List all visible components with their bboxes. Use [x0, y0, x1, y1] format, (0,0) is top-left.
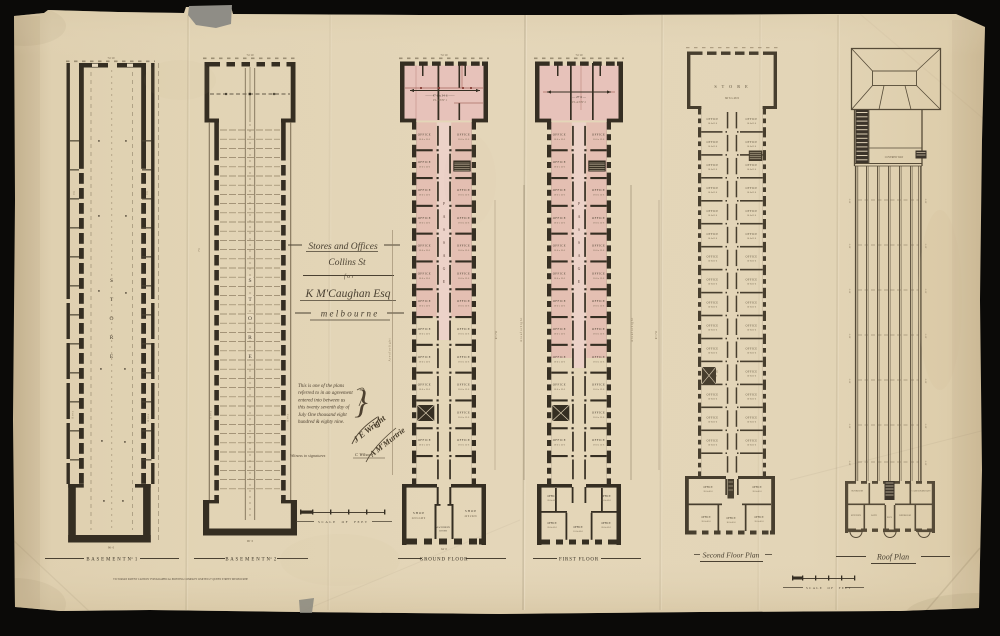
svg-text:OFFICE: OFFICE [706, 164, 718, 167]
svg-text:16·0x12·6: 16·0x12·6 [747, 398, 757, 400]
svg-text:OFFICE: OFFICE [418, 188, 431, 192]
svg-text:OFFICE: OFFICE [706, 325, 718, 328]
svg-text:BEDROOM: BEDROOM [899, 515, 911, 517]
svg-text:BATH: BATH [871, 514, 877, 517]
svg-text:16·0 x 13·6: 16·0 x 13·6 [419, 138, 431, 141]
svg-text:OFFICE: OFFICE [706, 348, 718, 351]
svg-text:R: R [110, 335, 114, 341]
svg-text:GROUND FLOOR: GROUND FLOOR [420, 558, 469, 563]
svg-text:16·0 x 13·6: 16·0 x 13·6 [554, 194, 566, 197]
svg-text:OFFICE: OFFICE [701, 516, 711, 519]
svg-text:16·0x12·6: 16·0x12·6 [747, 444, 757, 446]
svg-text:16·0x12·6: 16·0x12·6 [708, 330, 718, 332]
svg-text:16·0 x 13·6: 16·0 x 13·6 [593, 305, 605, 308]
svg-text:16·0x12·6: 16·0x12·6 [747, 307, 757, 309]
svg-text:OFFICE: OFFICE [703, 486, 713, 489]
svg-text:OFFICE: OFFICE [706, 416, 718, 419]
svg-text:20·0x16·6: 20·0x16·6 [601, 500, 611, 502]
svg-text:16·0 x 13·6: 16·0 x 13·6 [554, 277, 566, 280]
svg-text:OFFICE: OFFICE [706, 439, 718, 442]
svg-text:OFFICE: OFFICE [706, 256, 718, 259]
svg-text:R: R [248, 335, 252, 341]
svg-text:20·0x16·0: 20·0x16·0 [701, 521, 711, 523]
svg-text:This is one of the plans: This is one of the plans [298, 384, 344, 389]
svg-text:16·0 x 13·6: 16·0 x 13·6 [458, 360, 470, 363]
svg-text:S: S [110, 278, 113, 284]
svg-text:OFFICE: OFFICE [592, 327, 605, 331]
svg-text:16·0 x 13·6: 16·0 x 13·6 [419, 221, 431, 224]
svg-text:— 27·6 —: — 27·6 — [571, 95, 587, 99]
svg-text:16·0 x 13·6: 16·0 x 13·6 [554, 166, 566, 169]
svg-text:20·0x16·6: 20·0x16·6 [601, 527, 611, 529]
svg-text:July One thousand eight: July One thousand eight [298, 413, 347, 418]
svg-text:24·0 x 140·0: 24·0 x 140·0 [412, 517, 426, 520]
svg-text:16·0 x 13·6: 16·0 x 13·6 [593, 444, 605, 447]
svg-text:S: S [443, 241, 445, 245]
svg-text:O: O [110, 316, 114, 322]
svg-text:OFFICE: OFFICE [706, 393, 718, 396]
svg-text:16·0 x 13·6: 16·0 x 13·6 [554, 444, 566, 447]
svg-text:16·0 x 13·6: 16·0 x 13·6 [458, 444, 470, 447]
svg-text:OFFICE: OFFICE [553, 327, 566, 331]
svg-text:OFFICE: OFFICE [745, 233, 757, 236]
svg-text:referred to in an agreement: referred to in an agreement [298, 391, 353, 396]
svg-text:P: P [443, 202, 445, 206]
svg-text:OFFICE: OFFICE [706, 141, 718, 144]
svg-text:CARETAKERS QTS: CARETAKERS QTS [912, 490, 932, 493]
svg-text:OFFICE: OFFICE [457, 244, 470, 248]
svg-text:16·0 x 13·6: 16·0 x 13·6 [458, 416, 470, 419]
svg-text:OFFICE: OFFICE [745, 118, 757, 121]
svg-text:OFFICE: OFFICE [592, 216, 605, 220]
svg-text:R·O·W: R·O·W [655, 330, 658, 339]
svg-text:16·0x10·0: 16·0x10·0 [573, 531, 583, 533]
svg-text:16·0 x 13·6: 16·0 x 13·6 [458, 249, 470, 252]
svg-text:Second Floor Plan: Second Floor Plan [703, 551, 760, 560]
svg-text:OFFICE: OFFICE [752, 486, 762, 489]
svg-text:16·0x12·6: 16·0x12·6 [708, 146, 718, 148]
svg-text:B A S E M E N T Nº 2: B A S E M E N T Nº 2 [225, 557, 276, 563]
svg-text:16·0x12·6: 16·0x12·6 [747, 192, 757, 194]
svg-text:OFFICE: OFFICE [418, 271, 431, 275]
svg-text:A r e a: A r e a [146, 413, 150, 422]
svg-text:Stores and Offices: Stores and Offices [308, 241, 378, 252]
svg-text:16·0 x 13·6: 16·0 x 13·6 [554, 360, 566, 363]
svg-text:16·0x12·6: 16·0x12·6 [747, 238, 757, 240]
svg-text:16·0x12·6: 16·0x12·6 [708, 261, 718, 263]
svg-text:ROOM: ROOM [439, 530, 447, 533]
svg-text:S: S [578, 241, 580, 245]
svg-text:20·0x16·6: 20·0x16·6 [547, 527, 557, 529]
svg-text:20·0x16·0: 20·0x16·0 [752, 491, 762, 493]
svg-text:OFFICE: OFFICE [592, 271, 605, 275]
svg-text:74·10: 74·10 [441, 53, 448, 57]
svg-text:this twenty seventh day of: this twenty seventh day of [298, 406, 350, 411]
svg-text:16·0 x 13·6: 16·0 x 13·6 [554, 221, 566, 224]
svg-text:OFFICE: OFFICE [553, 438, 566, 442]
svg-text:16·0 x 13·6: 16·0 x 13·6 [593, 333, 605, 336]
svg-text:KITCHEN: KITCHEN [851, 515, 861, 517]
svg-text:OFFICE: OFFICE [745, 279, 757, 282]
svg-text:OFFICE: OFFICE [418, 299, 431, 303]
svg-text:COVERED WAY: COVERED WAY [885, 156, 904, 159]
svg-text:OFFICE: OFFICE [547, 495, 557, 498]
svg-text:K M′Caughan Esq: K M′Caughan Esq [305, 288, 391, 300]
svg-text:16·0 x 13·6: 16·0 x 13·6 [554, 138, 566, 141]
svg-text:16·0x12·6: 16·0x12·6 [708, 238, 718, 240]
svg-text:16·0x12·6: 16·0x12·6 [708, 421, 718, 423]
svg-text:16·0 x 13·6: 16·0 x 13·6 [419, 444, 431, 447]
svg-text:f o r: f o r [344, 273, 355, 280]
svg-text:OFFICE: OFFICE [706, 279, 718, 282]
svg-text:A r e a f o r l i g h t: A r e a f o r l i g h t [388, 338, 392, 361]
svg-text:OFFICE: OFFICE [745, 187, 757, 190]
svg-text:16·0 x 13·6: 16·0 x 13·6 [593, 221, 605, 224]
svg-text:R·O·W: R·O·W [495, 330, 498, 339]
svg-text:16·0 x 13·6: 16·0 x 13·6 [419, 305, 431, 308]
svg-text:A: A [443, 254, 446, 258]
svg-text:OFFICE: OFFICE [745, 325, 757, 328]
svg-text:OFFICE: OFFICE [745, 348, 757, 351]
svg-text:16·0 x 13·6: 16·0 x 13·6 [554, 333, 566, 336]
svg-text:OFFICE: OFFICE [418, 327, 431, 331]
svg-text:OFFICE: OFFICE [573, 526, 583, 529]
svg-text:16·0 x 13·6: 16·0 x 13·6 [593, 360, 605, 363]
svg-text:OFFICE: OFFICE [418, 438, 431, 442]
svg-text:16·0x12·6: 16·0x12·6 [747, 169, 757, 171]
svg-text:OFFICE: OFFICE [745, 302, 757, 305]
svg-text:ELEV: ELEV [887, 517, 893, 519]
svg-text:OFFICE: OFFICE [726, 517, 736, 520]
svg-text:OFFICE: OFFICE [553, 271, 566, 275]
svg-text:16·0x12·6: 16·0x12·6 [747, 215, 757, 217]
svg-text:96· 0: 96· 0 [108, 546, 115, 550]
svg-text:OFFICE: OFFICE [706, 118, 718, 121]
svg-text:OFFICE: OFFICE [418, 244, 431, 248]
svg-text:P L A N Nº 2: P L A N Nº 2 [572, 101, 586, 104]
svg-text:hundred & eighty nine.: hundred & eighty nine. [298, 420, 344, 425]
svg-text:OFFICE: OFFICE [553, 244, 566, 248]
svg-text:S H O P: S H O P [413, 511, 424, 515]
svg-text:A r e a f o r l i g h t: A r e a f o r l i g h t [630, 318, 634, 342]
svg-text:OFFICE: OFFICE [457, 438, 470, 442]
svg-text:20·0x16·0: 20·0x16·0 [703, 491, 713, 493]
svg-text:24·0 x 94·6: 24·0 x 94·6 [464, 515, 477, 518]
svg-text:A: A [443, 215, 446, 219]
svg-text:S: S [248, 278, 251, 284]
svg-text:SCALE OF FEET: SCALE OF FEET [318, 520, 369, 524]
svg-text:OFFICE: OFFICE [706, 187, 718, 190]
svg-text:20·0x16·6: 20·0x16·6 [547, 500, 557, 502]
svg-text:16·0 x 13·6: 16·0 x 13·6 [554, 249, 566, 252]
svg-text:OFFICE: OFFICE [745, 370, 757, 373]
svg-text:OFFICE: OFFICE [706, 210, 718, 213]
svg-text:OFFICE: OFFICE [601, 495, 611, 498]
svg-text:P: P [578, 202, 580, 206]
svg-text:16·0 x 13·6: 16·0 x 13·6 [554, 388, 566, 391]
svg-text:OFFICE: OFFICE [592, 132, 605, 136]
svg-text:S H O P: S H O P [465, 509, 476, 513]
svg-text:16·0x12·6: 16·0x12·6 [708, 307, 718, 309]
svg-text:16·0 x 13·6: 16·0 x 13·6 [458, 305, 470, 308]
svg-text:OFFICE: OFFICE [457, 271, 470, 275]
svg-text:OFFICE: OFFICE [745, 164, 757, 167]
svg-text:OFFICE: OFFICE [592, 410, 605, 414]
svg-text:OFFICE: OFFICE [553, 355, 566, 359]
svg-text:16·0x12·6: 16·0x12·6 [747, 330, 757, 332]
svg-text:OFFICE: OFFICE [706, 233, 718, 236]
svg-text:16·0x12·6: 16·0x12·6 [708, 192, 718, 194]
svg-text:A: A [578, 254, 581, 258]
svg-text:20·0x16·0: 20·0x16·0 [754, 521, 764, 523]
svg-text:OFFICE: OFFICE [418, 160, 431, 164]
svg-text:16·0 x 13·6: 16·0 x 13·6 [419, 388, 431, 391]
svg-text:OFFICE: OFFICE [745, 439, 757, 442]
svg-text:16·0 x 13·6: 16·0 x 13·6 [554, 305, 566, 308]
svg-text:16·0x12·6: 16·0x12·6 [708, 353, 718, 355]
svg-text:S: S [578, 228, 580, 232]
svg-text:OFFICE: OFFICE [754, 516, 764, 519]
svg-text:16·0x12·6: 16·0x12·6 [747, 421, 757, 423]
svg-text:16·0x12·6: 16·0x12·6 [747, 284, 757, 286]
svg-text:16·0x12·6: 16·0x12·6 [747, 146, 757, 148]
svg-text:OFFICE: OFFICE [592, 299, 605, 303]
svg-text:OFFICE: OFFICE [592, 438, 605, 442]
svg-text:OFFICE: OFFICE [418, 355, 431, 359]
svg-text:96· 0: 96· 0 [247, 539, 254, 543]
svg-text:16·0 x 13·6: 16·0 x 13·6 [593, 277, 605, 280]
svg-text:OFFICE: OFFICE [553, 132, 566, 136]
svg-text:16·0x12·6: 16·0x12·6 [747, 123, 757, 125]
svg-text:16·0 x 13·6: 16·0 x 13·6 [419, 360, 431, 363]
svg-text:OFFICE: OFFICE [706, 302, 718, 305]
svg-text:C Wilson: C Wilson [355, 452, 372, 457]
svg-text:16·0x12·6: 16·0x12·6 [708, 284, 718, 286]
svg-text:A r e a: A r e a [71, 410, 75, 419]
svg-text:OFFICE: OFFICE [745, 141, 757, 144]
svg-text:66·6 x 46·6: 66·6 x 46·6 [725, 96, 739, 100]
svg-text:Collins St: Collins St [328, 258, 366, 268]
svg-text:S: S [443, 228, 445, 232]
svg-text:64· 0: 64· 0 [441, 548, 447, 551]
svg-text:16·0 x 13·6: 16·0 x 13·6 [458, 333, 470, 336]
svg-text:16·0 x 13·6: 16·0 x 13·6 [419, 194, 431, 197]
svg-text:16·0 x 13·6: 16·0 x 13·6 [419, 333, 431, 336]
svg-text:16·0x12·6: 16·0x12·6 [747, 375, 757, 377]
svg-text:74·10: 74·10 [247, 53, 254, 57]
svg-text:OFFICE: OFFICE [553, 216, 566, 220]
svg-text:Roof Plan: Roof Plan [876, 553, 909, 562]
svg-text:OFFICE: OFFICE [592, 355, 605, 359]
svg-text:OFFICE: OFFICE [418, 132, 431, 136]
svg-text:OFFICE: OFFICE [745, 393, 757, 396]
svg-text:16·0 x 13·6: 16·0 x 13·6 [593, 138, 605, 141]
svg-text:OFFICE: OFFICE [553, 299, 566, 303]
svg-text:74·10: 74·10 [576, 53, 583, 57]
svg-text:16·0x12·6: 16·0x12·6 [708, 215, 718, 217]
svg-text:OFFICE: OFFICE [418, 216, 431, 220]
svg-text:16·0 x 13·6: 16·0 x 13·6 [593, 194, 605, 197]
svg-text:O: O [248, 316, 252, 322]
svg-text:OFFICE: OFFICE [553, 383, 566, 387]
svg-text:OFFICE: OFFICE [457, 327, 470, 331]
svg-text:entered into between us: entered into between us [298, 398, 345, 403]
svg-text:S T O R E: S T O R E [714, 84, 749, 89]
svg-text:Witness to signatures: Witness to signatures [290, 453, 326, 458]
svg-text:—— 47·6 x 34·6 ——: —— 47·6 x 34·6 —— [424, 94, 455, 98]
svg-text:16·0 x 13·6: 16·0 x 13·6 [593, 388, 605, 391]
svg-text:16·0x10·6: 16·0x10·6 [726, 522, 736, 524]
svg-text:16·0x12·6: 16·0x12·6 [708, 123, 718, 125]
svg-text:G: G [578, 267, 581, 271]
svg-text:m e l b o u r n e: m e l b o u r n e [321, 309, 378, 319]
svg-text:FIRST FLOOR: FIRST FLOOR [559, 558, 599, 563]
svg-text:OFFICE: OFFICE [592, 244, 605, 248]
svg-text:16·0 x 13·6: 16·0 x 13·6 [419, 249, 431, 252]
svg-text:SUNROOM: SUNROOM [851, 491, 863, 493]
svg-text:16·0 x 13·6: 16·0 x 13·6 [419, 277, 431, 280]
svg-text:P L A N Nº 1: P L A N Nº 1 [433, 99, 447, 102]
svg-text:OFFICE: OFFICE [745, 256, 757, 259]
svg-text:G: G [443, 267, 446, 271]
svg-text:16·0 x 13·6: 16·0 x 13·6 [458, 277, 470, 280]
svg-text:OFFICE: OFFICE [592, 383, 605, 387]
svg-text:16·0x12·6: 16·0x12·6 [747, 353, 757, 355]
svg-text:OFFICE: OFFICE [457, 410, 470, 414]
svg-text:A r e a f o r l i g h t: A r e a f o r l i g h t [519, 318, 523, 342]
svg-text:A r e a: A r e a [209, 410, 213, 419]
svg-text:16·0 x 13·6: 16·0 x 13·6 [419, 166, 431, 169]
svg-text:OFFICE: OFFICE [745, 210, 757, 213]
svg-text:OFFICE: OFFICE [553, 188, 566, 192]
svg-text:OFFICE: OFFICE [592, 188, 605, 192]
svg-text:16·0 x 13·6: 16·0 x 13·6 [593, 249, 605, 252]
svg-text:16·0 x 13·6: 16·0 x 13·6 [593, 416, 605, 419]
svg-text:OFFICE: OFFICE [547, 522, 557, 525]
svg-text:OFFICE: OFFICE [457, 299, 470, 303]
svg-text:VICTORIAN PATENT CANNON TYPOGR: VICTORIAN PATENT CANNON TYPOGRAPHICAL PR… [113, 578, 248, 581]
svg-text:OFFICE: OFFICE [418, 383, 431, 387]
svg-text:16·0x12·6: 16·0x12·6 [708, 444, 718, 446]
svg-text:16·0 x 13·6: 16·0 x 13·6 [458, 388, 470, 391]
svg-text:A r e a: A r e a [286, 413, 290, 422]
svg-text:}: } [354, 384, 368, 421]
svg-text:OFFICE: OFFICE [457, 355, 470, 359]
svg-text:16·0x12·6: 16·0x12·6 [708, 398, 718, 400]
svg-text:SCALE OF FEET: SCALE OF FEET [806, 586, 852, 590]
svg-text:16·0x12·6: 16·0x12·6 [708, 169, 718, 171]
svg-text:OFFICE: OFFICE [601, 522, 611, 525]
svg-text:OFFICE: OFFICE [553, 160, 566, 164]
svg-text:A: A [578, 215, 581, 219]
svg-text:74·10: 74·10 [108, 56, 115, 60]
svg-text:16·0x12·6: 16·0x12·6 [747, 261, 757, 263]
svg-text:OFFICE: OFFICE [457, 383, 470, 387]
svg-text:OFFICE: OFFICE [745, 416, 757, 419]
svg-text:B A S E M E N T Nº 1: B A S E M E N T Nº 1 [86, 557, 137, 563]
